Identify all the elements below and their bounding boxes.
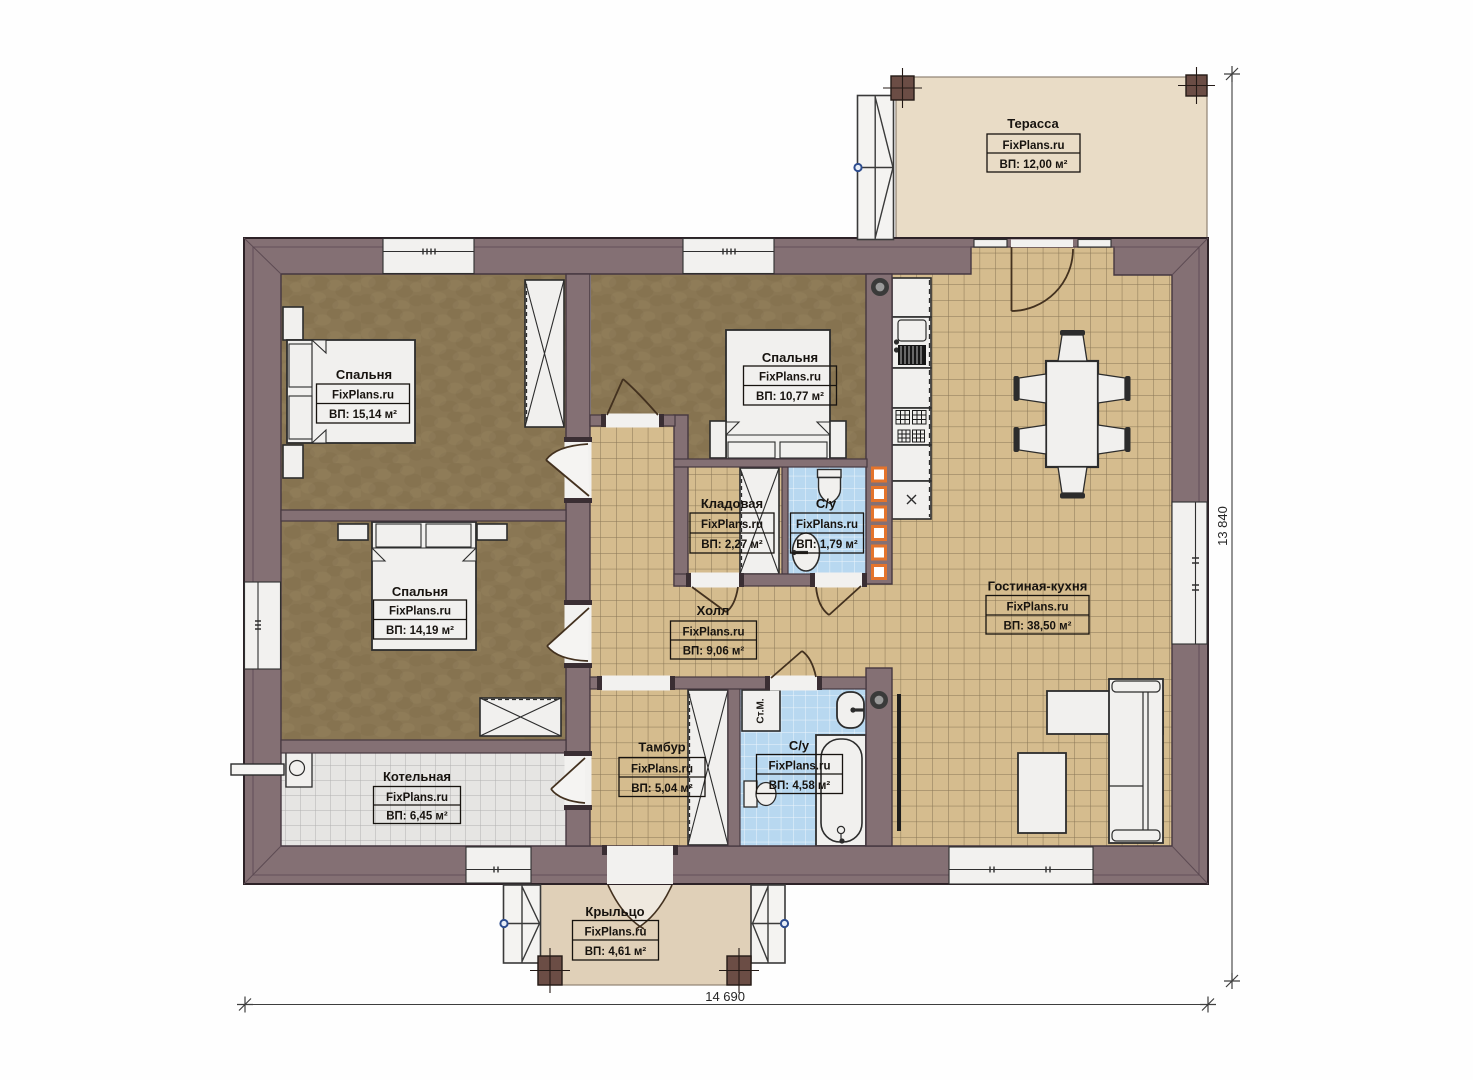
- svg-text:FixPlans.ru: FixPlans.ru: [701, 519, 763, 531]
- svg-text:ВП: 38,50 м²: ВП: 38,50 м²: [1004, 621, 1072, 633]
- svg-text:ВП: 5,04 м²: ВП: 5,04 м²: [631, 783, 693, 795]
- svg-text:FixPlans.ru: FixPlans.ru: [769, 761, 831, 773]
- svg-text:Холл: Холл: [697, 603, 730, 618]
- svg-text:ВП: 4,61 м²: ВП: 4,61 м²: [585, 946, 647, 958]
- svg-text:ВП: 9,06 м²: ВП: 9,06 м²: [683, 646, 745, 658]
- svg-text:С/у: С/у: [789, 738, 810, 753]
- svg-text:Кладовая: Кладовая: [701, 496, 763, 511]
- svg-text:ВП: 4,58 м²: ВП: 4,58 м²: [769, 780, 831, 792]
- svg-text:FixPlans.ru: FixPlans.ru: [1007, 602, 1069, 614]
- svg-text:14 690: 14 690: [705, 989, 745, 1004]
- svg-text:FixPlans.ru: FixPlans.ru: [631, 764, 693, 776]
- svg-text:FixPlans.ru: FixPlans.ru: [389, 606, 451, 618]
- svg-text:FixPlans.ru: FixPlans.ru: [386, 792, 448, 804]
- svg-text:Крыльцо: Крыльцо: [585, 904, 644, 919]
- svg-text:ВП: 10,77 м²: ВП: 10,77 м²: [756, 391, 824, 403]
- svg-text:ВП: 1,79 м²: ВП: 1,79 м²: [796, 539, 858, 551]
- svg-text:ВП: 12,00 м²: ВП: 12,00 м²: [1000, 159, 1068, 171]
- svg-text:Ст.М.: Ст.М.: [756, 698, 767, 723]
- svg-text:Котельная: Котельная: [383, 769, 451, 784]
- svg-text:Спальня: Спальня: [762, 350, 818, 365]
- svg-text:FixPlans.ru: FixPlans.ru: [1003, 140, 1065, 152]
- svg-text:FixPlans.ru: FixPlans.ru: [796, 519, 858, 531]
- svg-text:Гостиная-кухня: Гостиная-кухня: [988, 579, 1088, 594]
- svg-text:Спальня: Спальня: [336, 367, 392, 382]
- svg-text:ВП: 6,45 м²: ВП: 6,45 м²: [386, 811, 448, 823]
- svg-text:FixPlans.ru: FixPlans.ru: [759, 372, 821, 384]
- svg-text:13 840: 13 840: [1215, 506, 1230, 546]
- svg-text:Тамбур: Тамбур: [638, 740, 685, 755]
- svg-text:Спальня: Спальня: [392, 584, 448, 599]
- svg-text:ВП: 14,19 м²: ВП: 14,19 м²: [386, 625, 454, 637]
- svg-text:С/у: С/у: [816, 496, 837, 511]
- svg-text:FixPlans.ru: FixPlans.ru: [683, 627, 745, 639]
- svg-text:FixPlans.ru: FixPlans.ru: [585, 927, 647, 939]
- svg-text:FixPlans.ru: FixPlans.ru: [332, 390, 394, 402]
- svg-text:Терасса: Терасса: [1007, 116, 1059, 131]
- svg-text:ВП: 15,14 м²: ВП: 15,14 м²: [329, 409, 397, 421]
- svg-text:ВП: 2,27 м²: ВП: 2,27 м²: [701, 539, 763, 551]
